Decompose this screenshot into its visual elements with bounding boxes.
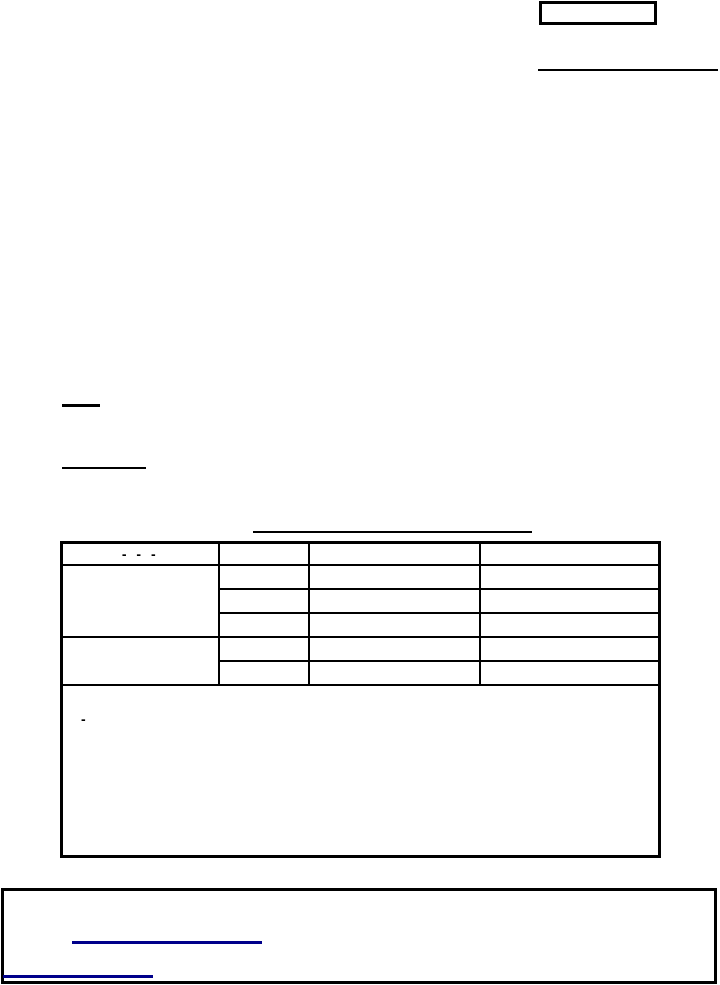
footer-link-2[interactable] (3, 975, 153, 978)
table-title-underline (253, 531, 532, 533)
table-header-cell (309, 543, 480, 565)
table-header-cell (480, 543, 660, 565)
table-group1-label-cell (62, 565, 219, 637)
table-row (62, 565, 660, 589)
data-table: - - - (60, 541, 661, 858)
table-cell (480, 613, 660, 637)
table-cell (480, 589, 660, 613)
table-cell (480, 565, 660, 589)
table-header-cell (219, 543, 309, 565)
footer-box (1, 888, 717, 984)
table-header-row: - - - (62, 543, 660, 565)
table-row (62, 637, 660, 661)
table-cell (309, 661, 480, 685)
table-cell (309, 589, 480, 613)
table-header-dashes-cell: - - - (62, 543, 219, 565)
table-note-cell: - (62, 685, 660, 857)
document-page: { "page": { "background_color": "#ffffff… (0, 0, 720, 985)
table-cell (309, 613, 480, 637)
table-cell (480, 661, 660, 685)
table-cell (309, 637, 480, 661)
table-group2-label-cell (62, 637, 219, 685)
table-cell (480, 637, 660, 661)
table-cell (219, 613, 309, 637)
header-box (539, 1, 657, 25)
table-note-row: - (62, 685, 660, 857)
table-cell (219, 565, 309, 589)
table-cell (219, 589, 309, 613)
table-cell (219, 637, 309, 661)
table-cell (309, 565, 480, 589)
blank-underline-label-1 (62, 404, 100, 407)
blank-underline-label-2 (62, 467, 146, 469)
table-cell (219, 661, 309, 685)
footer-link-1[interactable] (72, 941, 262, 944)
header-rule (538, 69, 718, 71)
